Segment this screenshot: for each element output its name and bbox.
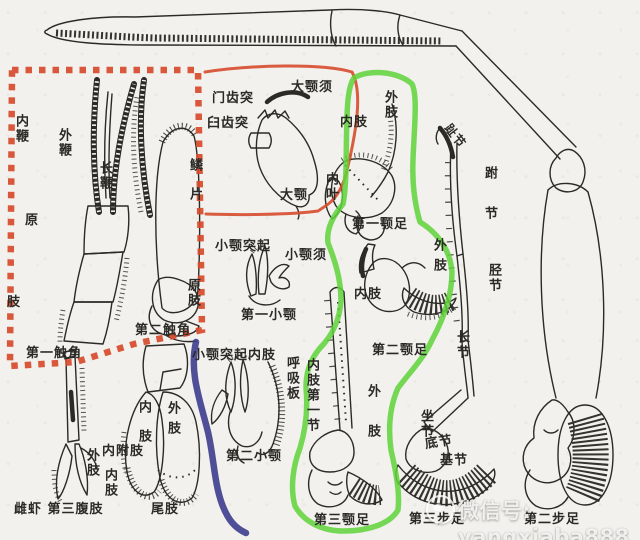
label-first-maxilla: 第一小颚 — [241, 309, 297, 323]
label-maxilla-process: 小颚突起 — [215, 240, 271, 254]
label-mxp2-exopod: 外肢 — [431, 238, 445, 278]
label-molar-process: 臼齿突 — [207, 117, 249, 131]
label-mxp2-endopod: 内肢 — [354, 288, 382, 302]
label-inner-flagellum: 内鞭 — [13, 114, 27, 144]
blue-divider-line — [194, 342, 246, 533]
third-pleopod-drawing — [54, 350, 97, 501]
second-maxilla-drawing — [211, 355, 281, 463]
label-pleopod-endopod: 内肢 — [102, 468, 116, 498]
label-long-flagellum: 长鞭 — [97, 161, 111, 191]
first-antenna-drawing — [60, 80, 134, 344]
label-endopod-first-segment: 内肢第一节 — [304, 358, 318, 433]
diagram-canvas: 内鞭 外鞭 长鞭 鳞片 原 肢 第一触角 第二触角 原肢 门齿突 臼齿突 大颚须… — [0, 0, 640, 540]
label-protopod-a1: 原 — [25, 214, 39, 228]
label-tarsus: 跗节 — [482, 166, 496, 246]
label-mxp1-endopod: 内肢 — [340, 116, 368, 130]
label-inner-lobe: 内叶 — [323, 172, 337, 202]
label-first-antenna: 第一触角 — [26, 347, 82, 361]
watermark-badge-icon — [426, 495, 455, 524]
label-second-antenna: 第二触角 — [135, 324, 191, 338]
label-third-maxilliped: 第三颚足 — [314, 514, 370, 528]
label-second-maxilliped: 第二颚足 — [372, 344, 428, 358]
label-scale: 鳞片 — [187, 158, 201, 216]
label-mandibular-palp: 大颚须 — [291, 81, 333, 95]
label-mandible: 大颚 — [280, 189, 308, 203]
label-uropod: 尾肢 — [151, 503, 179, 517]
watermark-text: 微信号: yangxiaba888 — [458, 495, 640, 540]
label-protopod-b: 原肢 — [185, 278, 199, 308]
label-merus: 长节 — [454, 330, 468, 360]
label-pleopod-exopod: 外肢 — [84, 448, 98, 478]
label-female-third-pleopod: 雌虾 第三腹肢 — [14, 503, 104, 517]
label-mxp3-exopod: 外肢 — [365, 384, 379, 464]
label-respiratory-plate: 呼吸板 — [284, 356, 298, 401]
label-uropod-exopod: 外肢 — [165, 401, 179, 441]
label-protopod-a2: 肢 — [7, 296, 21, 310]
label-second-maxilla: 第二小颚 — [226, 450, 282, 464]
label-maxilla-palp: 小颚须 — [285, 249, 327, 263]
uropod-drawing — [123, 344, 200, 502]
label-first-maxilliped: 第一颚足 — [352, 218, 408, 232]
label-basis: 基节 — [440, 454, 468, 468]
label-mxp1-exopod: 外肢 — [382, 90, 396, 120]
label-uropod-endopod: 内肢 — [136, 400, 150, 458]
label-maxilla-process-endopod: 小颚突起内肢 — [192, 349, 276, 363]
label-incisor-process: 门齿突 — [212, 92, 254, 106]
label-outer-flagellum: 外鞭 — [56, 128, 70, 158]
label-ischium: 坐节 — [418, 409, 432, 439]
label-tibia: 胫节 — [486, 263, 500, 293]
